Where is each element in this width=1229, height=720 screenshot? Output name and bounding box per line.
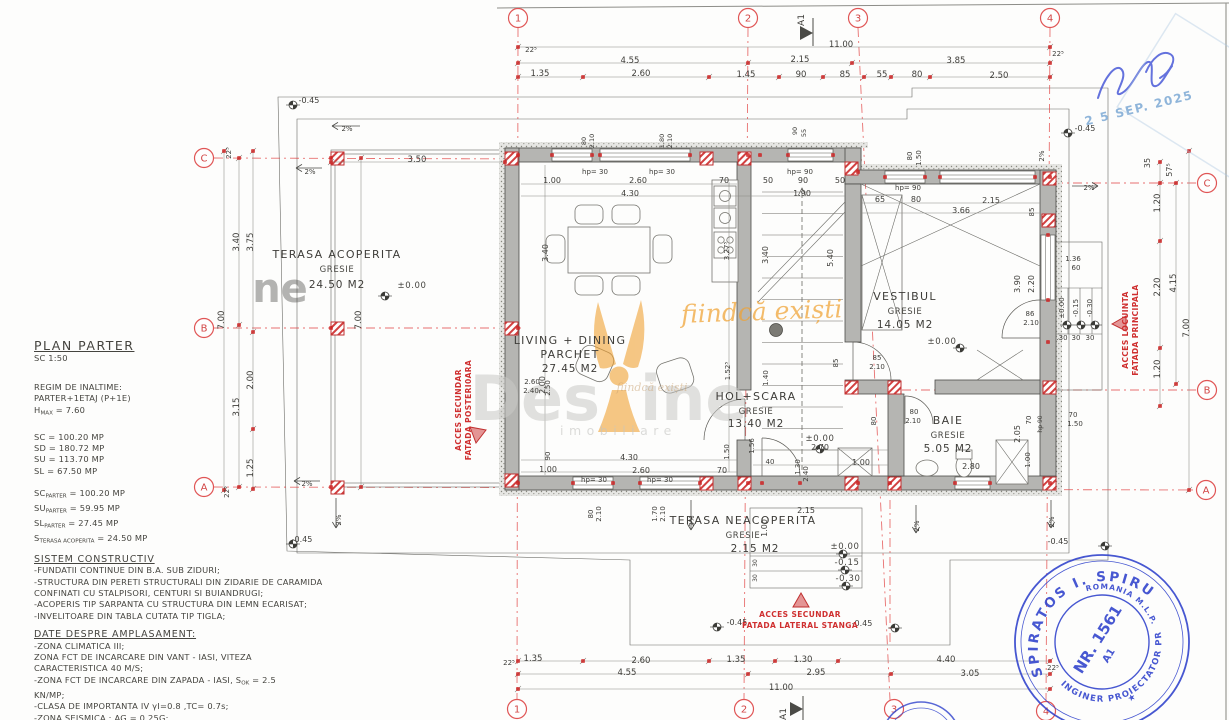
dimension-label: 2%: [1083, 184, 1094, 192]
dimension-label: -0.30: [836, 574, 861, 584]
dimension-label: 80: [587, 510, 595, 519]
dimension-label: -0.45: [1048, 537, 1069, 546]
dimension-label: 30: [752, 574, 759, 582]
dimension-label: 1.50: [915, 150, 923, 166]
dimension-label: 2%: [1038, 150, 1046, 161]
grid-bubble-label: 2: [745, 14, 751, 25]
dimension-label: FATADA LATERAL STANGA: [742, 621, 858, 630]
dimension-label: hp= 30: [582, 168, 608, 176]
dimension-label: 80: [906, 152, 914, 161]
dimension-label: 1.45: [737, 70, 756, 80]
dimension-label: 4.40: [937, 655, 956, 665]
dimension-label: 2%: [304, 168, 315, 176]
dimension-label: 90: [544, 452, 552, 461]
dimension-label: hp= 30: [649, 168, 675, 176]
dimension-label: 13.40 M2: [728, 418, 784, 430]
dimension-label: 85: [1028, 208, 1036, 217]
dimension-label: 22⁵: [525, 46, 537, 54]
dimension-label: -0.30: [1086, 299, 1094, 317]
grid-bubble-label: B: [201, 324, 208, 335]
grid-bubble-label: A: [201, 483, 208, 494]
svg-text:ne: ne: [252, 266, 308, 312]
dimension-label: 3.40: [232, 233, 242, 252]
room-label-living-dining: LIVING + DINING: [514, 334, 627, 347]
dimension-label: 1.00: [539, 465, 557, 474]
dimension-label: 24.50 M2: [309, 279, 365, 291]
dimension-label: 30: [1086, 334, 1095, 342]
grid-bubble-label: C: [1204, 179, 1211, 190]
dimension-label: 2%: [341, 125, 352, 133]
dimension-label: 4.15: [1169, 274, 1179, 293]
dimension-label: 2%: [335, 514, 343, 525]
dimension-label: 1.90: [793, 189, 811, 198]
dimension-label: FATADA PRINCIPALA: [1131, 284, 1140, 375]
dimension-label: 3.40: [541, 244, 550, 262]
dimension-label: PARCHET: [540, 348, 599, 361]
dimension-label: 1.25: [246, 459, 256, 478]
dimension-label: GRESIE: [888, 307, 923, 317]
dimension-label: 2.00: [246, 371, 256, 390]
dimension-label: 22⁵: [223, 486, 231, 498]
dimension-label: GRESIE: [931, 431, 966, 441]
dimension-label: 2.15 M2: [731, 543, 780, 555]
dimension-label: 1.35: [531, 69, 550, 79]
dimension-label: 90: [791, 127, 799, 135]
dimension-label: 2.40: [523, 387, 539, 395]
dimension-label: 50: [835, 176, 845, 185]
dimension-label: 2.15: [982, 196, 1000, 205]
dimension-label: 57⁵: [1165, 163, 1174, 176]
access-label-principala: ACCES LOCUINTA: [1121, 291, 1130, 368]
dimension-label: GRESIE: [726, 531, 761, 541]
dimension-label: 70: [717, 466, 727, 475]
dimension-label: FATADA POSTERI0ARA: [464, 360, 473, 460]
dimension-label: 2.50: [544, 380, 552, 396]
dimension-label: -0.45: [292, 535, 313, 544]
svg-text:fiindcă exiști: fiindcă exiști: [679, 294, 843, 329]
dimension-label: 11.00: [769, 683, 793, 693]
dimension-label: 2.10: [905, 417, 921, 425]
dimension-label: 70: [1069, 411, 1078, 419]
dimension-label: 2.10: [1023, 319, 1039, 327]
dimension-label: A1: [779, 708, 789, 720]
dimension-label: GRESIE: [320, 265, 355, 275]
dimension-label: 1.40: [762, 370, 770, 386]
dimension-label: -0.15: [1072, 299, 1080, 317]
dimension-label: 2%: [913, 520, 921, 531]
dimension-label: 1.80: [658, 134, 666, 148]
dimension-label: 1.30: [794, 459, 802, 475]
dimension-label: 3.90: [1013, 275, 1022, 293]
grid-bubble-label: 4: [1047, 14, 1053, 25]
dimension-label: 5.05 M2: [924, 443, 973, 455]
dimension-label: 1.56: [748, 438, 756, 454]
dimension-label: 2.60: [629, 176, 647, 185]
grid-bubble-label: 2: [741, 705, 747, 716]
dimension-label: 2.60: [632, 656, 651, 666]
dimension-label: 2.10: [869, 363, 885, 371]
grid-bubble-label: 1: [515, 14, 521, 25]
dimension-label: 90: [796, 70, 807, 80]
dimension-label: 22⁵: [503, 659, 515, 667]
dimension-label: 2.40: [802, 466, 810, 482]
dimension-label: 1.70: [651, 506, 659, 522]
dimension-label: 85: [840, 70, 851, 80]
dimension-label: 4.55: [618, 668, 637, 678]
dimension-label: 3.27⁵: [723, 242, 731, 261]
dimension-label: .30: [1056, 334, 1067, 342]
dimension-label: 2%: [301, 480, 312, 488]
dimension-label: 3.05: [961, 669, 980, 679]
dimension-label: 2.10: [595, 506, 603, 522]
dimension-label: 2.05: [1013, 425, 1022, 443]
dimension-label: 50: [763, 176, 773, 185]
dimension-label: 2.70: [811, 443, 829, 452]
room-label-hol-scara: HOL+SCARA: [716, 390, 797, 403]
dimension-label: 80: [870, 417, 878, 426]
dimension-label: 1.52⁵: [724, 362, 732, 381]
room-label-baie: BAIE: [933, 414, 963, 427]
dimension-label: hp 90: [1037, 415, 1044, 432]
dimension-label: 40: [766, 458, 775, 466]
dimension-label: 30: [752, 559, 759, 567]
grid-bubble-label: A: [1203, 486, 1210, 497]
dimension-label: 3.66: [952, 206, 970, 215]
dimension-label: 3.15: [232, 398, 242, 417]
dimension-label: 86: [1026, 310, 1035, 318]
dimension-label: 4.30: [621, 189, 639, 198]
access-label-posterioara: ACCES SECUNDAR: [454, 369, 463, 451]
room-label-terasa-acoperita: TERASA ACOPERITA: [272, 248, 402, 261]
dimension-label: 60: [1072, 264, 1081, 272]
watermark-figure-icon: [594, 300, 644, 432]
dimension-label: 1.50: [723, 444, 731, 460]
furniture: [546, 180, 1040, 484]
dimension-label: 27.45 M2: [542, 363, 598, 375]
dimension-label: 65: [875, 195, 885, 204]
grid-bubble-label: C: [201, 154, 208, 165]
svg-text:NR. 1561: NR. 1561: [1070, 602, 1126, 677]
access-label-lateral-stanga: ACCES SECUNDAR: [759, 610, 841, 619]
dimension-label: 2.95: [807, 668, 826, 678]
dimension-label: 70: [1025, 416, 1033, 425]
dimension-label: 1.35: [524, 654, 543, 664]
dimension-label: 2.10: [666, 134, 674, 148]
dimension-label: 2.60: [632, 69, 651, 79]
dimension-label: 80: [580, 137, 588, 145]
dimension-label: 1.20: [1153, 360, 1163, 379]
dimension-label: 1.00: [1024, 452, 1032, 468]
dimension-label: 7.00: [354, 311, 364, 330]
dimension-label: 7.00: [217, 311, 227, 330]
dimension-label: 11.00: [829, 40, 853, 50]
floor-plan-drawing: ne Des ine imobiliare fiindcă exiști fii…: [0, 0, 1229, 720]
dimension-label: 2.60: [632, 466, 650, 475]
room-label-vestibul: VESTIBUL: [873, 290, 937, 303]
dimension-label: 55: [800, 129, 808, 137]
grid-bubble-label: 1: [514, 705, 520, 716]
dimension-label: 1.30: [794, 655, 813, 665]
dimension-label: -0.45: [299, 96, 320, 105]
dimension-label: 85: [873, 354, 882, 362]
dimension-label: 55: [877, 70, 888, 80]
dimension-label: 3.50: [408, 155, 427, 165]
dimension-label: 22⁵: [1052, 50, 1064, 58]
dimension-label: 2.80: [962, 462, 980, 471]
dimension-label: 1.50: [1067, 420, 1083, 428]
dimension-label: 2.60: [524, 378, 540, 386]
dimension-label: 35: [1143, 158, 1152, 168]
dimension-label: 1.20: [1153, 194, 1163, 213]
dimension-label: ±0.00: [1058, 297, 1066, 318]
dimension-label: 70: [719, 176, 729, 185]
dimension-label: 2%: [1048, 516, 1056, 527]
dimension-label: 4.55: [621, 56, 640, 66]
svg-text:A1: A1: [1101, 647, 1118, 665]
dimension-label: 3.40: [761, 246, 770, 264]
dimension-label: 80: [911, 195, 921, 204]
dimension-label: ±0.00: [927, 337, 956, 347]
dimension-label: 2.10: [588, 134, 596, 148]
dimension-label: A1: [797, 14, 807, 26]
dimension-label: 1.00: [852, 458, 870, 467]
dimension-label: 90: [798, 176, 808, 185]
dimension-label: 4.30: [620, 453, 638, 462]
dimension-label: 80: [910, 408, 919, 416]
grid-bubble-label: 3: [855, 14, 861, 25]
dimension-label: 85: [832, 359, 840, 368]
floor-plan-sheet: PLAN PARTERSC 1:50REGIM DE INALTIME:PART…: [0, 0, 1229, 720]
dimension-label: 30: [1072, 334, 1081, 342]
dimension-label: ±0.00: [397, 281, 426, 291]
svg-text:imobiliare: imobiliare: [560, 423, 677, 438]
dimension-label: 2.15: [791, 55, 810, 65]
dimension-label: 22⁵: [1047, 664, 1059, 672]
dimension-label: 2.20: [1027, 275, 1036, 293]
signature-scribble: [1098, 53, 1173, 98]
grid-bubble-label: B: [1204, 386, 1211, 397]
dimension-label: 22⁵: [225, 147, 233, 159]
svg-text:fiindcă exiști: fiindcă exiști: [615, 381, 687, 394]
dimension-label: hp= 90: [787, 168, 813, 176]
dimension-label: ±0.00: [805, 434, 834, 444]
room-label-terasa-neacoperita: TERASA NEACOPERITA: [669, 514, 817, 527]
dimension-label: hp= 30: [647, 476, 673, 484]
dimension-label: 2.10: [659, 506, 667, 522]
dimension-label: 3.85: [947, 56, 966, 66]
dimension-label: hp= 90: [895, 184, 921, 192]
dimension-label: ±0.00: [830, 542, 859, 552]
dimension-label: 7.00: [1182, 319, 1192, 338]
dimension-label: 3.75: [246, 233, 256, 252]
dimension-label: hp= 30: [581, 476, 607, 484]
dimension-label: 1.35: [727, 655, 746, 665]
dimension-label: 2.50: [990, 71, 1009, 81]
engineer-round-stamp: SPIRATOS I. SPIRU INGINER PROIECTATOR PR…: [984, 524, 1219, 720]
dimension-label: 14.05 M2: [877, 319, 933, 331]
dimension-label: 5.40: [826, 249, 835, 267]
dimension-label: GRESIE: [739, 407, 774, 417]
dimension-label: 80: [912, 70, 923, 80]
dimension-label: 2.20: [1153, 278, 1163, 297]
dimension-label: 1.00: [543, 176, 561, 185]
dimension-label: -0.15: [835, 558, 860, 568]
dimension-label: 1.36: [1065, 255, 1081, 263]
